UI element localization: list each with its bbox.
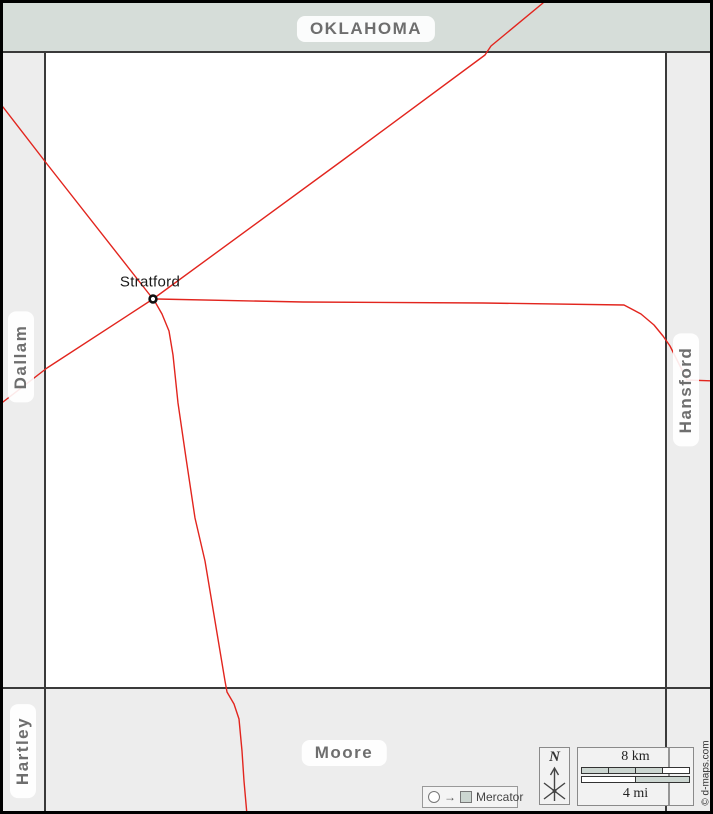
scale-segment — [582, 777, 635, 782]
scale-km-label: 8 km — [578, 748, 693, 765]
region-label-hartley: Hartley — [10, 704, 36, 798]
compass-box: N — [539, 747, 570, 805]
scale-segment — [608, 768, 635, 773]
road-east — [157, 299, 710, 381]
scale-segment — [582, 768, 608, 773]
globe-circle-icon — [428, 791, 440, 803]
scale-mi-label: 4 mi — [578, 785, 693, 802]
scale-bar-km — [581, 767, 690, 774]
scale-segment — [635, 768, 662, 773]
region-label-moore: Moore — [302, 740, 387, 766]
scale-box: 8 km 4 mi — [577, 747, 694, 806]
region-label-oklahoma: OKLAHOMA — [297, 16, 435, 42]
projection-legend: → Mercator — [422, 786, 518, 808]
compass-rose-icon — [540, 765, 569, 803]
road-northwest — [3, 107, 153, 299]
city-label-stratford: Stratford — [120, 274, 180, 291]
road-south — [154, 300, 247, 811]
projection-name: Mercator — [476, 790, 523, 804]
county-map: OKLAHOMA Dallam Hansford Hartley Moore S… — [0, 0, 713, 814]
region-label-hansford: Hansford — [673, 334, 699, 447]
region-label-dallam: Dallam — [8, 312, 34, 403]
city-marker-stratford — [150, 296, 157, 303]
projected-square-icon — [460, 791, 472, 803]
roads-layer — [3, 3, 710, 811]
road-northeast — [153, 3, 543, 299]
compass-north-label: N — [540, 749, 569, 765]
arrow-right-icon: → — [444, 791, 456, 803]
scale-bar-mi — [581, 776, 690, 783]
copyright-credit: © d-maps.com — [701, 740, 712, 805]
scale-segment — [662, 768, 689, 773]
scale-segment — [635, 777, 689, 782]
